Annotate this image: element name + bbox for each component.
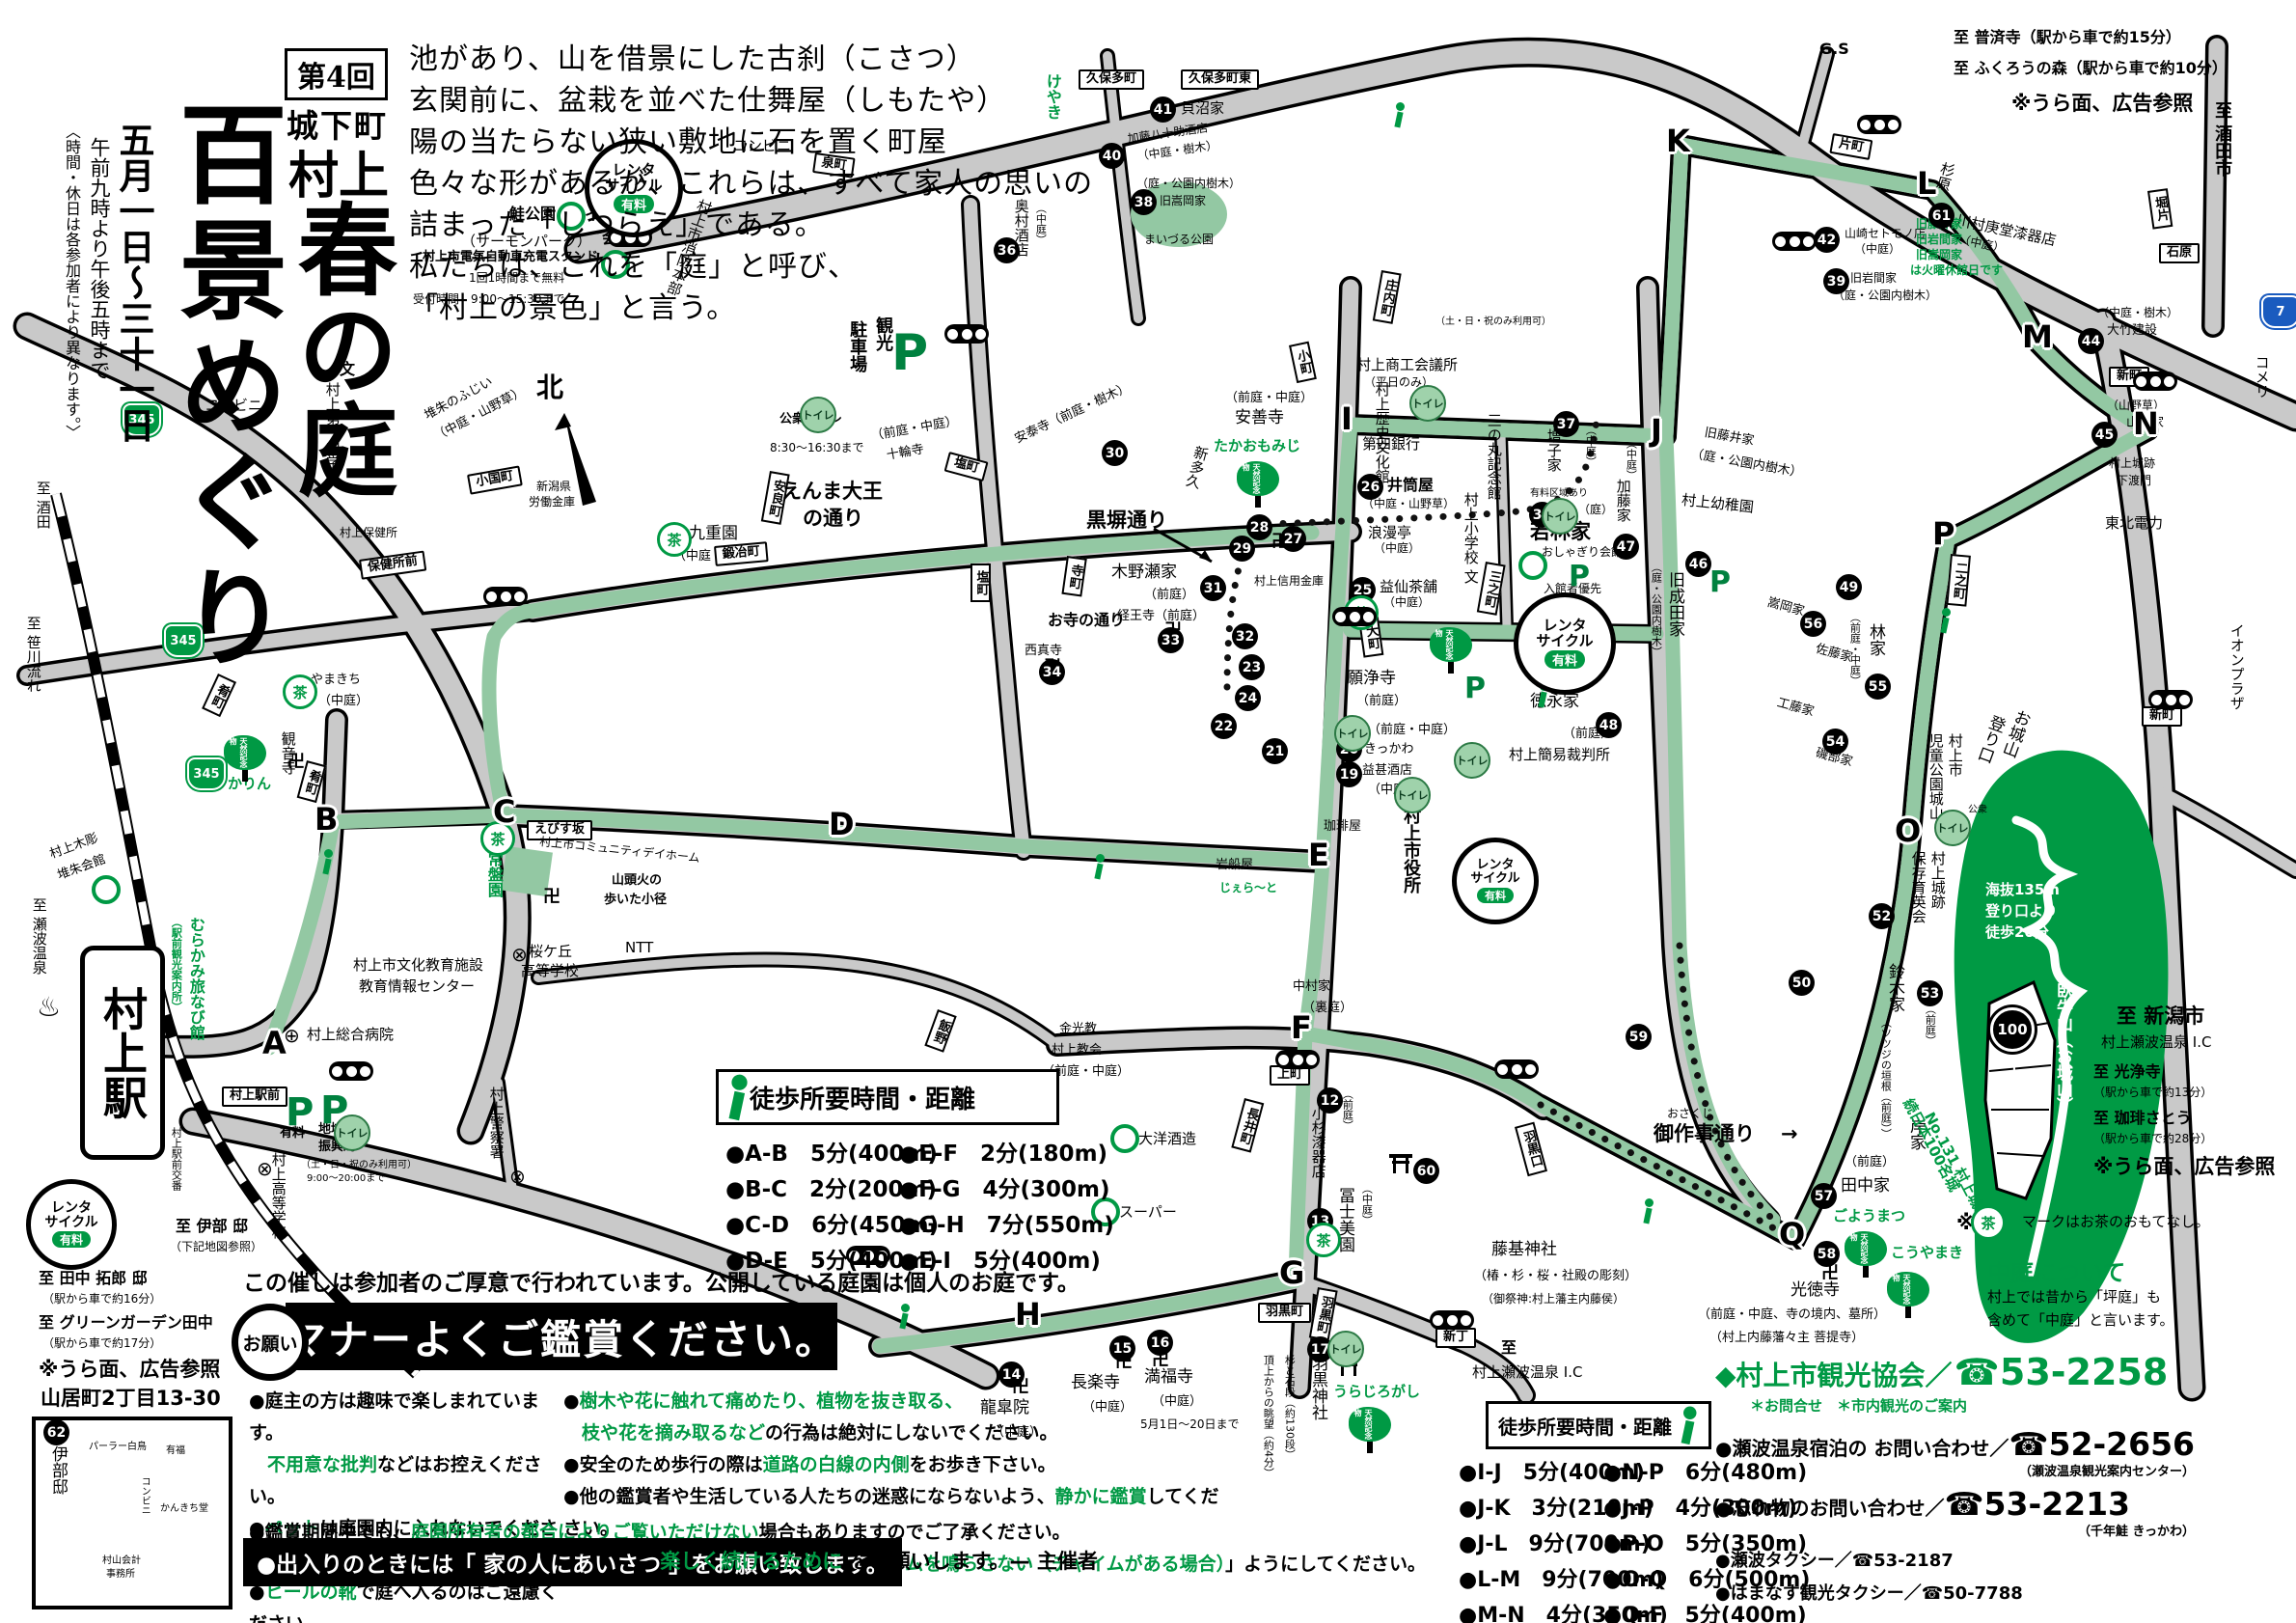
site-number-100: 100: [1990, 1007, 2035, 1052]
site-number-54: 54: [1822, 729, 1848, 755]
site-number-45: 45: [2091, 422, 2118, 448]
poi-ring-icon: [1110, 1124, 1139, 1153]
map-label: 至 酒田: [35, 481, 51, 529]
murakami-spring-garden-map: 第4回 城下町 村上 春の庭 百景めぐり 五月一日～三十一日 午前九時より午後五…: [0, 0, 2296, 1623]
map-label: 旧嵩岡家: [1160, 195, 1206, 207]
tourism-association: ◆村上市観光協会／ ☎53-2258: [1715, 1351, 2195, 1393]
toilet-icon: トイレ: [1327, 1331, 1364, 1367]
map-label: 村上小学校 文: [1462, 492, 1479, 584]
map-label: 貝沼家: [1181, 100, 1224, 117]
title-hyakkei-meguri: 百景めぐり: [170, 98, 278, 677]
contact-note: （瀬波温泉観光案内センター）: [1715, 1461, 2195, 1479]
map-label: 大竹建設: [2107, 324, 2157, 339]
map-label: （土・日・祝のみ利用可）: [1435, 316, 1551, 327]
map-label: （前庭）: [1356, 695, 1407, 709]
map-label: 久保多町東: [1181, 69, 1259, 90]
walker-icon: [1640, 1198, 1654, 1224]
tourism-association-sub: ＊お問合せ ＊市内観光のご案内: [1750, 1395, 2195, 1416]
site-number-38: 38: [1131, 189, 1157, 215]
route-point-Q: Q: [1779, 1216, 1805, 1252]
map-label: 木野瀬家: [1111, 564, 1177, 582]
map-label: 歩いた小径: [604, 894, 667, 908]
map-label: 林家: [1866, 623, 1884, 656]
site-number-33: 33: [1158, 627, 1184, 653]
route-point-A: A: [262, 1025, 287, 1061]
site-number-19: 19: [1336, 761, 1362, 787]
tea-hospitality-icon: 茶: [283, 674, 317, 709]
area-code-note: 〈市外局番 0254〉: [1715, 1618, 2195, 1623]
site-number-37: 37: [1553, 411, 1579, 437]
map-label: 保存育英会: [1910, 851, 1927, 923]
map-label: 村上城趾: [2003, 1042, 2021, 1108]
map-label: 村上警察署: [488, 1087, 505, 1159]
map-label: 事務所: [106, 1569, 135, 1580]
traffic-signal-icon: [2148, 690, 2193, 709]
map-label: 村上市文化教育施設: [353, 957, 483, 974]
map-label: コンビニ: [139, 1476, 150, 1515]
natural-monument-tree-icon: 天然記念物: [1430, 627, 1472, 674]
map-label: コメリ: [2254, 355, 2270, 399]
map-label: 村上市: [1947, 733, 1963, 777]
walker-icon: [319, 849, 333, 874]
route-point-L: L: [1917, 165, 1936, 202]
site-number-21: 21: [1262, 738, 1288, 764]
site-number-40: 40: [1099, 143, 1125, 169]
map-label: ♨: [37, 992, 61, 1022]
map-label: NTT: [625, 940, 653, 956]
route-point-O: O: [1895, 812, 1921, 849]
map-label: ※うら面、広告参照: [2011, 93, 2193, 116]
map-label: （中庭・樹木）: [2097, 307, 2178, 319]
map-label: （庭）: [1578, 504, 1613, 516]
toilet-icon: トイレ: [1542, 498, 1578, 535]
title-murakami: 村上: [288, 135, 389, 207]
contact-note: （千年鮭 きっかわ）: [1715, 1521, 2195, 1539]
route-point-I: I: [1341, 400, 1353, 437]
map-label: 伊部邸: [48, 1445, 67, 1495]
map-label: （駅前観光案内所）: [170, 917, 181, 1012]
map-label: 経王寺（前庭）: [1117, 610, 1205, 624]
map-label: まいづる公園: [1144, 234, 1214, 246]
intro-line: 詰まった「しつらえ」である。: [409, 205, 1093, 246]
map-label: 常盤園: [485, 851, 503, 897]
traffic-signal-icon: [1275, 1050, 1320, 1069]
map-label: （中庭）: [318, 695, 369, 709]
site-number-44: 44: [2078, 328, 2104, 354]
map-label: おさくじ: [1667, 1108, 1713, 1120]
route-shield-7: 7: [2261, 295, 2296, 328]
site-number-42: 42: [1814, 227, 1840, 253]
walker-icon: [1391, 102, 1405, 127]
map-label: やまきち: [311, 674, 361, 688]
route-point-E: E: [1308, 837, 1329, 873]
traffic-signal-icon: [1494, 1059, 1539, 1079]
tourism-association-name: ◆村上市観光協会／: [1715, 1355, 1953, 1393]
map-label: 九重園: [689, 525, 738, 543]
map-label: 小杉漆器店: [1310, 1106, 1326, 1178]
site-number-32: 32: [1232, 623, 1258, 649]
map-label: ※うら面、広告参照: [39, 1359, 220, 1382]
torii-icon: [1389, 1154, 1412, 1173]
map-label: きっかわ: [1364, 743, 1413, 757]
map-label: 卍: [543, 888, 560, 907]
natural-monument-tree-icon: 天然記念物: [224, 735, 266, 782]
traffic-signal-icon: [1430, 1310, 1474, 1330]
walk-legend-1-col2: ●E-F 2分(180m)●F-G 4分(300m)●G-H 7分(550m)●…: [899, 1135, 1114, 1278]
map-label: 願浄寺: [1347, 670, 1396, 688]
site-number-46: 46: [1685, 551, 1711, 577]
toilet-icon: トイレ: [1934, 810, 1971, 846]
map-label: 中庭について: [1987, 1260, 2125, 1286]
intro-line: 色々な形があるが、これらは、すべて家人の思いの: [409, 163, 1093, 205]
map-label: 珈琲屋: [1324, 820, 1361, 835]
site-number-39: 39: [1823, 268, 1849, 294]
map-label: 桜ケ丘: [529, 944, 572, 960]
map-label: 含めて「中庭」と言います。: [1987, 1312, 2174, 1329]
map-label: →: [1781, 1123, 1798, 1146]
map-label: ⊗: [257, 1158, 273, 1179]
map-label: 村上瀬波温泉 I.C: [1472, 1364, 1582, 1381]
site-number-31: 31: [1200, 575, 1226, 601]
parking-icon: P: [1569, 560, 1590, 593]
site-number-16: 16: [1147, 1330, 1173, 1356]
map-label: 石原: [2159, 243, 2200, 263]
map-label: 鈴木家: [1885, 963, 1903, 1012]
map-label: （前庭・中庭）: [1848, 612, 1860, 686]
map-label: 頂上からの眺望（約4分）: [1262, 1355, 1273, 1478]
parking-icon: P: [286, 1090, 314, 1135]
traffic-signal-icon: [1857, 115, 1901, 134]
parking-icon: P: [1464, 672, 1486, 705]
edition-badge: 第4回: [285, 48, 388, 100]
map-label: 至 田中 拓郎 邸: [39, 1270, 148, 1287]
traffic-signal-icon: [1772, 232, 1817, 251]
map-label: 山崎セトモノ店: [1845, 228, 1926, 240]
traffic-signal-icon: [329, 1061, 373, 1081]
intro-paragraph: 池があり、山を借景にした古刹（こさつ）玄関前に、盆栽を並べた仕舞屋（しもたや）陽…: [409, 39, 1093, 329]
map-label: こうやまき: [1891, 1245, 1963, 1261]
event-hours: 午前九時より午後五時まで: [85, 137, 114, 380]
map-label: 御作事通り: [1654, 1123, 1755, 1146]
intro-line: 玄関前に、盆栽を並べた仕舞屋（しもたや）: [409, 80, 1093, 122]
map-label: 塩町: [970, 564, 991, 602]
parking-icon: P: [320, 1088, 348, 1133]
manner-banner: マナーよくご鑑賞ください。: [286, 1303, 837, 1370]
map-label: （庭・公園内樹木）: [1136, 178, 1241, 190]
map-label: 旧岩間家: [1850, 272, 1897, 285]
toilet-icon: トイレ: [1334, 715, 1371, 752]
walk-legend-2: 徒歩所要時間・距離: [1486, 1401, 1711, 1449]
site-number-60: 60: [1413, 1158, 1439, 1184]
traffic-signal-icon: [2133, 371, 2177, 391]
map-label: 山居町2丁目13-30: [41, 1388, 221, 1411]
site-number-47: 47: [1613, 534, 1639, 560]
map-label: おしゃぎり会館: [1542, 546, 1623, 559]
map-label: 高等学校: [521, 963, 579, 979]
site-number-27: 27: [1280, 526, 1306, 552]
tourism-association-phone: ☎53-2258: [1954, 1351, 2169, 1393]
map-label: 金光教: [1059, 1023, 1097, 1037]
etiquette-line: ●安全のため歩行の際は道路の白線の内側をお歩き下さい。: [563, 1449, 1219, 1481]
map-label: 至 笹川流れ: [25, 616, 41, 693]
map-label: （駅から車で約28分）: [2093, 1133, 2212, 1145]
site-number-22: 22: [1211, 713, 1237, 739]
contact-block: ◆村上市観光協会／ ☎53-2258 ＊お問合せ ＊市内観光のご案内 ●瀬波温泉…: [1715, 1351, 2195, 1623]
taxi-contact: ●瀬波タクシー／☎53-2187: [1715, 1547, 2195, 1572]
map-label: 岩船屋: [1216, 859, 1253, 873]
map-label: （中庭）: [1360, 1183, 1372, 1225]
map-label: （ツツジの垣根（前庭））: [1879, 1017, 1891, 1140]
map-label: 村上総合病院: [307, 1027, 394, 1043]
poi-ring-icon: [1518, 551, 1547, 580]
site-number-56: 56: [1800, 611, 1826, 637]
map-label: ※うら面、広告参照: [2093, 1156, 2275, 1179]
map-label: 至 ふくろうの森（駅から車で約10分）: [1954, 60, 2228, 77]
map-label: （中庭）: [1584, 425, 1596, 467]
site-number-15: 15: [1109, 1335, 1135, 1362]
map-label: 至 珈琲さとう: [2093, 1110, 2192, 1127]
taxi-contact: ●はまなす観光タクシー／☎50-7788: [1715, 1580, 2195, 1605]
map-label: かんきち堂: [160, 1503, 208, 1514]
etiquette-line: ●樹木や花に触れて痛めたり、植物を抜き取る、: [563, 1386, 1219, 1417]
site-number-23: 23: [1239, 654, 1265, 680]
rental-cycle-icon: レンタサイクル有料: [1514, 592, 1616, 695]
contact-rows: ●瀬波温泉宿泊の お問い合わせ／☎52-2656（瀬波温泉観光案内センター）●忘…: [1715, 1425, 2195, 1539]
map-label: 教育情報センター: [359, 978, 475, 995]
traffic-signal-icon: [1332, 607, 1377, 626]
map-label: 至 酒田市: [2212, 101, 2231, 177]
map-label: の通り: [803, 508, 863, 531]
map-label: 村上信用金庫: [1254, 575, 1324, 588]
map-label: （土・日・祝のみ利用可）: [301, 1160, 417, 1170]
kurobei-arrowhead: [1199, 550, 1212, 562]
map-label: 卍: [1821, 1264, 1839, 1283]
map-label: 新丁: [1435, 1328, 1476, 1348]
map-label: （駅から車で約16分）: [42, 1293, 161, 1306]
event-note: 〈時間・休日は各参加者により異なります。〉: [60, 124, 83, 440]
map-label: 至 光浄寺: [2093, 1063, 2161, 1081]
map-label: 卍: [287, 753, 305, 772]
onegai-circle: お願い: [232, 1304, 309, 1381]
map-label: （前庭）: [1845, 1156, 1895, 1170]
parking-icon: P: [891, 324, 928, 382]
site-number-53: 53: [1917, 980, 1943, 1006]
map-label: 村上駅前交番: [170, 1127, 181, 1191]
tea-hospitality-icon: 茶: [657, 522, 692, 557]
walk-time-item: ●E-F 2分(180m): [899, 1135, 1114, 1170]
map-label: 羽黒神社: [1308, 1355, 1326, 1420]
map-label: 8:30～16:30まで: [770, 442, 864, 454]
route-point-M: M: [2022, 318, 2053, 355]
map-label: （駅から車で約13分）: [2093, 1087, 2212, 1099]
etiquette-line: — 楽しく続けるために をお願いします。— 主催者: [633, 1546, 1098, 1575]
intro-line: 陽の当たらない狭い敷地に石を置く町屋: [409, 122, 1093, 163]
map-label: （村上内藤藩々主 菩提寺）: [1709, 1332, 1864, 1346]
map-label: 新潟県: [536, 481, 571, 493]
map-label: 満福寺: [1144, 1368, 1193, 1387]
map-label: 村上市役所: [1401, 807, 1420, 894]
walker-icon: [1677, 1407, 1697, 1444]
taxi-rows: ●瀬波タクシー／☎53-2187●はまなす観光タクシー／☎50-7788: [1715, 1547, 2195, 1605]
map-label: 安善寺: [1235, 409, 1284, 427]
contact-row: ●瀬波温泉宿泊の お問い合わせ／☎52-2656: [1715, 1425, 2195, 1463]
site-number-55: 55: [1865, 674, 1891, 700]
route-point-G: G: [1279, 1254, 1304, 1291]
map-label: ごようまつ: [1833, 1208, 1905, 1224]
traffic-signal-icon: [483, 587, 528, 606]
map-label: （椿・杉・桜・社殿の彫刻）: [1474, 1270, 1637, 1284]
map-label: 村上保健所: [340, 527, 397, 539]
murakami-station-box: 村上駅: [80, 946, 165, 1160]
map-label: （中庭）: [1374, 542, 1420, 555]
site-number-59: 59: [1626, 1024, 1652, 1050]
map-label: G.S: [1819, 41, 1849, 58]
map-label: （駅から車で約17分）: [42, 1337, 161, 1350]
map-label: （前庭・中庭、寺の境内、墓所）: [1698, 1308, 1886, 1323]
tea-hospitality-icon: 茶: [1306, 1223, 1341, 1257]
map-label: 村上商工会議所: [1356, 357, 1458, 373]
map-label: 至 普済寺（駅から車で約15分）: [1954, 29, 2181, 46]
map-label: うらじろがし: [1333, 1384, 1420, 1400]
route-point-B: B: [314, 801, 338, 838]
site-number-41: 41: [1150, 96, 1176, 123]
etiquette-line: 不用意な批判などはお控えください。: [249, 1449, 567, 1513]
map-label: 光徳寺: [1790, 1281, 1840, 1300]
intro-line: 私たちは、これを「庭」と呼び、: [409, 246, 1093, 288]
map-label: 村上駅前: [222, 1087, 287, 1107]
map-label: 第四銀行: [1362, 436, 1420, 453]
map-label: （庭・公園内樹木）: [1650, 562, 1661, 657]
map-label: 新町: [2142, 706, 2182, 727]
route-point-F: F: [1291, 1009, 1312, 1046]
natural-monument-tree-icon: 天然記念物: [1887, 1272, 1929, 1318]
map-label: 有福: [166, 1445, 185, 1456]
map-label: （前庭・中庭）: [1368, 724, 1456, 738]
site-number-52: 52: [1869, 903, 1895, 929]
map-label: 至 新潟市: [2117, 1005, 2204, 1029]
walker-icon: [723, 1075, 747, 1120]
toilet-icon: トイレ: [800, 397, 836, 433]
map-label: 黒塀通り: [1086, 509, 1167, 533]
route-point-D: D: [829, 806, 855, 842]
rental-cycle-icon: レンタサイクル有料: [26, 1179, 117, 1270]
etiquette-line: 枝や花を摘み取るなどの行為は絶対にしないでください。: [563, 1417, 1219, 1449]
map-label: 益甚酒店: [1362, 764, 1412, 779]
route-point-C: C: [493, 793, 515, 830]
contact-row: ●忘れ物のお問い合わせ／☎53-2213: [1715, 1485, 2195, 1523]
map-label: 山頭火の: [612, 874, 662, 889]
route-point-K: K: [1666, 123, 1690, 159]
map-label: 臥牛山（お城山）: [2053, 982, 2071, 1114]
map-label: 井筒屋: [1387, 477, 1434, 494]
map-label: （御祭神:村上藩主内藤侯）: [1482, 1293, 1625, 1306]
map-label: 杉と石段（約130段）: [1283, 1355, 1295, 1460]
map-label: 至 グリーンガーデン田中: [39, 1314, 213, 1332]
map-label: 海抜135m: [1985, 882, 2060, 898]
map-label: （中庭）: [1625, 438, 1636, 481]
map-label: ⊗: [509, 1166, 526, 1187]
map-label: じぇら～と: [1219, 882, 1277, 894]
map-label: 村上簡易裁判所: [1509, 747, 1610, 763]
map-label: 9:00～20:00まで: [307, 1173, 385, 1184]
event-dates: 五月一日～三十一日: [108, 122, 160, 443]
map-label: ⊗: [511, 944, 528, 965]
site-number-62: 62: [43, 1419, 69, 1445]
map-label: 田中家: [1841, 1177, 1890, 1196]
map-label: （前庭）: [1144, 589, 1194, 603]
site-number-26: 26: [1357, 474, 1383, 500]
walk-legend-2-title: 徒歩所要時間・距離: [1498, 1412, 1672, 1440]
notice-intro: この催しは参加者のご厚意で行われています。公開している庭園は個人のお庭です。: [243, 1264, 1080, 1297]
map-label: 村山会計: [102, 1555, 141, 1566]
map-label: （前庭・中庭）: [1225, 392, 1313, 406]
map-label: 下渡門: [2117, 475, 2151, 487]
map-label: 中村家: [1293, 980, 1330, 995]
route-point-P: P: [1932, 515, 1954, 552]
map-label: （中庭・山野草）: [1362, 498, 1455, 510]
rental-cycle-icon: レンタサイクル有料: [1452, 838, 1539, 924]
intro-line: 「村上の景色」と言う。: [409, 288, 1093, 329]
map-label: スーパー: [1119, 1204, 1177, 1221]
site-number-49: 49: [1836, 574, 1862, 600]
route-point-J: J: [1651, 412, 1662, 449]
map-label: 徒歩20分: [1985, 924, 2049, 941]
route-point-H: H: [1015, 1296, 1041, 1333]
site-number-14: 14: [998, 1362, 1025, 1388]
map-label: 藤基神社: [1491, 1241, 1557, 1259]
parking-icon: P: [1709, 565, 1731, 599]
toilet-icon: トイレ: [1409, 385, 1446, 422]
walker-icon: [1091, 854, 1105, 879]
tea-hospitality-icon: 茶: [1971, 1205, 2006, 1240]
map-label: 公衆: [1968, 805, 1987, 815]
site-number-24: 24: [1235, 685, 1261, 711]
map-label: マークはお茶のおもてなし。: [2022, 1214, 2209, 1230]
map-label: 村上瀬波温泉 I.C: [2101, 1034, 2211, 1051]
etiquette-left: ●庭主の方は趣味で楽しまれています。 不用意な批判などはお控えください。●ペット…: [249, 1386, 567, 1623]
route-shield-345: 345: [187, 757, 226, 790]
map-label: 大洋酒造: [1138, 1131, 1196, 1147]
map-label: （中庭）: [1854, 243, 1900, 256]
walk-legend-1-title: 徒歩所要時間・距離: [750, 1080, 975, 1115]
map-label: えんま大王: [781, 481, 883, 504]
map-label: 至: [1501, 1339, 1517, 1357]
map-label: 旧成田家: [1665, 571, 1683, 637]
map-label: （前庭）: [1341, 1088, 1353, 1131]
site-number-30: 30: [1102, 440, 1128, 466]
map-label: 村上歴史文化館: [1374, 382, 1390, 483]
organizer-note: — 楽しく続けるために をお願いします。— 主催者: [633, 1546, 1098, 1575]
station-name: 村上駅: [91, 986, 154, 1119]
map-label: 至 瀬波温泉: [31, 897, 47, 975]
site-number-48: 48: [1596, 712, 1622, 738]
map-label: （前庭）: [1924, 1004, 1935, 1046]
natural-monument-tree-icon: 天然記念物: [1237, 461, 1279, 508]
map-label: 児童公園城山: [1927, 733, 1944, 820]
site-number-34: 34: [1039, 659, 1065, 685]
map-label: 北: [536, 372, 563, 402]
site-number-57: 57: [1811, 1183, 1837, 1209]
walk-legend-1: 徒歩所要時間・距離: [716, 1069, 1059, 1125]
map-label: （中庭）: [1383, 596, 1430, 609]
walker-icon: [1937, 608, 1951, 633]
map-label: （庭・公園内樹木）: [1833, 289, 1937, 302]
walker-icon: [896, 1304, 910, 1329]
map-label: パーラー白鳥: [89, 1442, 147, 1452]
map-label: お寺の通り: [1048, 612, 1125, 629]
map-label: （下記地図参照）: [170, 1241, 262, 1253]
site-number-29: 29: [1229, 536, 1255, 562]
